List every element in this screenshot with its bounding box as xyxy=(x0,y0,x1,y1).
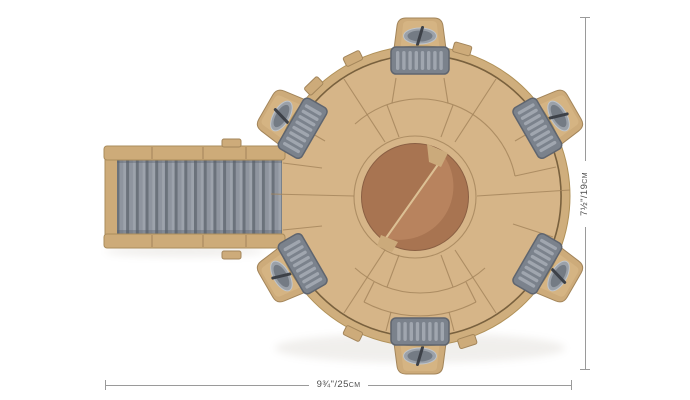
height-dimension-label: 7½"/19cm xyxy=(580,172,590,216)
dimension-line xyxy=(368,385,571,386)
dimension-tick xyxy=(571,380,572,390)
ramp-ribbed-surface xyxy=(117,159,282,235)
entry-ramp xyxy=(104,139,285,259)
ramp-rail-top xyxy=(104,146,285,160)
dimension-line xyxy=(106,385,309,386)
grip-pad xyxy=(391,318,449,345)
center-turntable xyxy=(362,144,469,253)
width-dimension-label: 9¾"/25cm xyxy=(317,380,361,390)
height-dimension-label-wrap: 7½"/19cm xyxy=(580,161,590,227)
ramp-tab xyxy=(222,139,241,147)
ramp-tab xyxy=(222,251,241,259)
grip-pad xyxy=(391,47,449,74)
ramp-rail-bottom xyxy=(104,234,285,248)
dimension-line xyxy=(585,18,586,161)
dimension-tick xyxy=(580,369,590,370)
width-dimension: 9¾"/25cm xyxy=(105,380,572,390)
product-image: 9¾"/25cm 7½"/19cm xyxy=(0,0,690,400)
height-dimension: 7½"/19cm xyxy=(580,17,590,370)
dimension-line xyxy=(585,227,586,370)
